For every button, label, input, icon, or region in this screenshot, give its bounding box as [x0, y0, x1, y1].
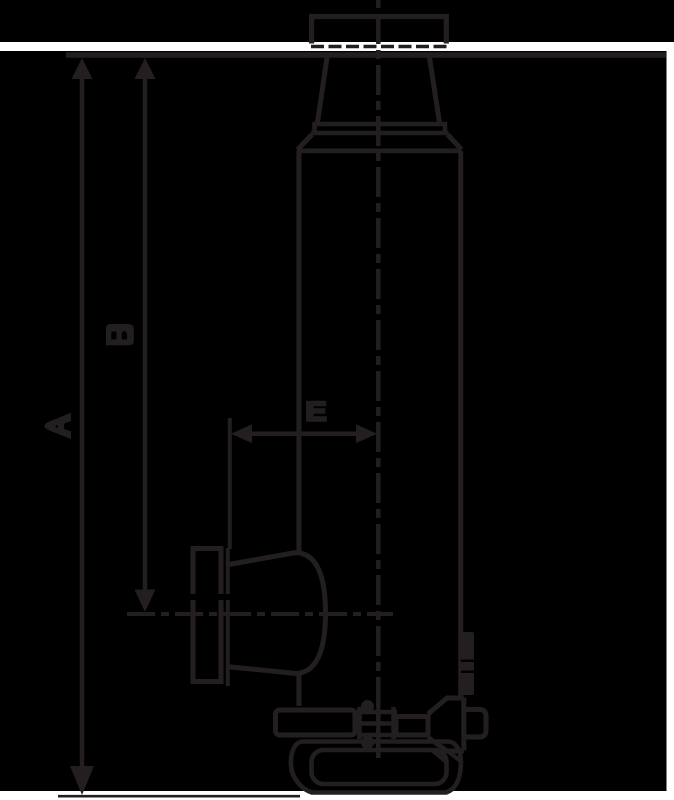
svg-text:E: E	[305, 397, 326, 427]
